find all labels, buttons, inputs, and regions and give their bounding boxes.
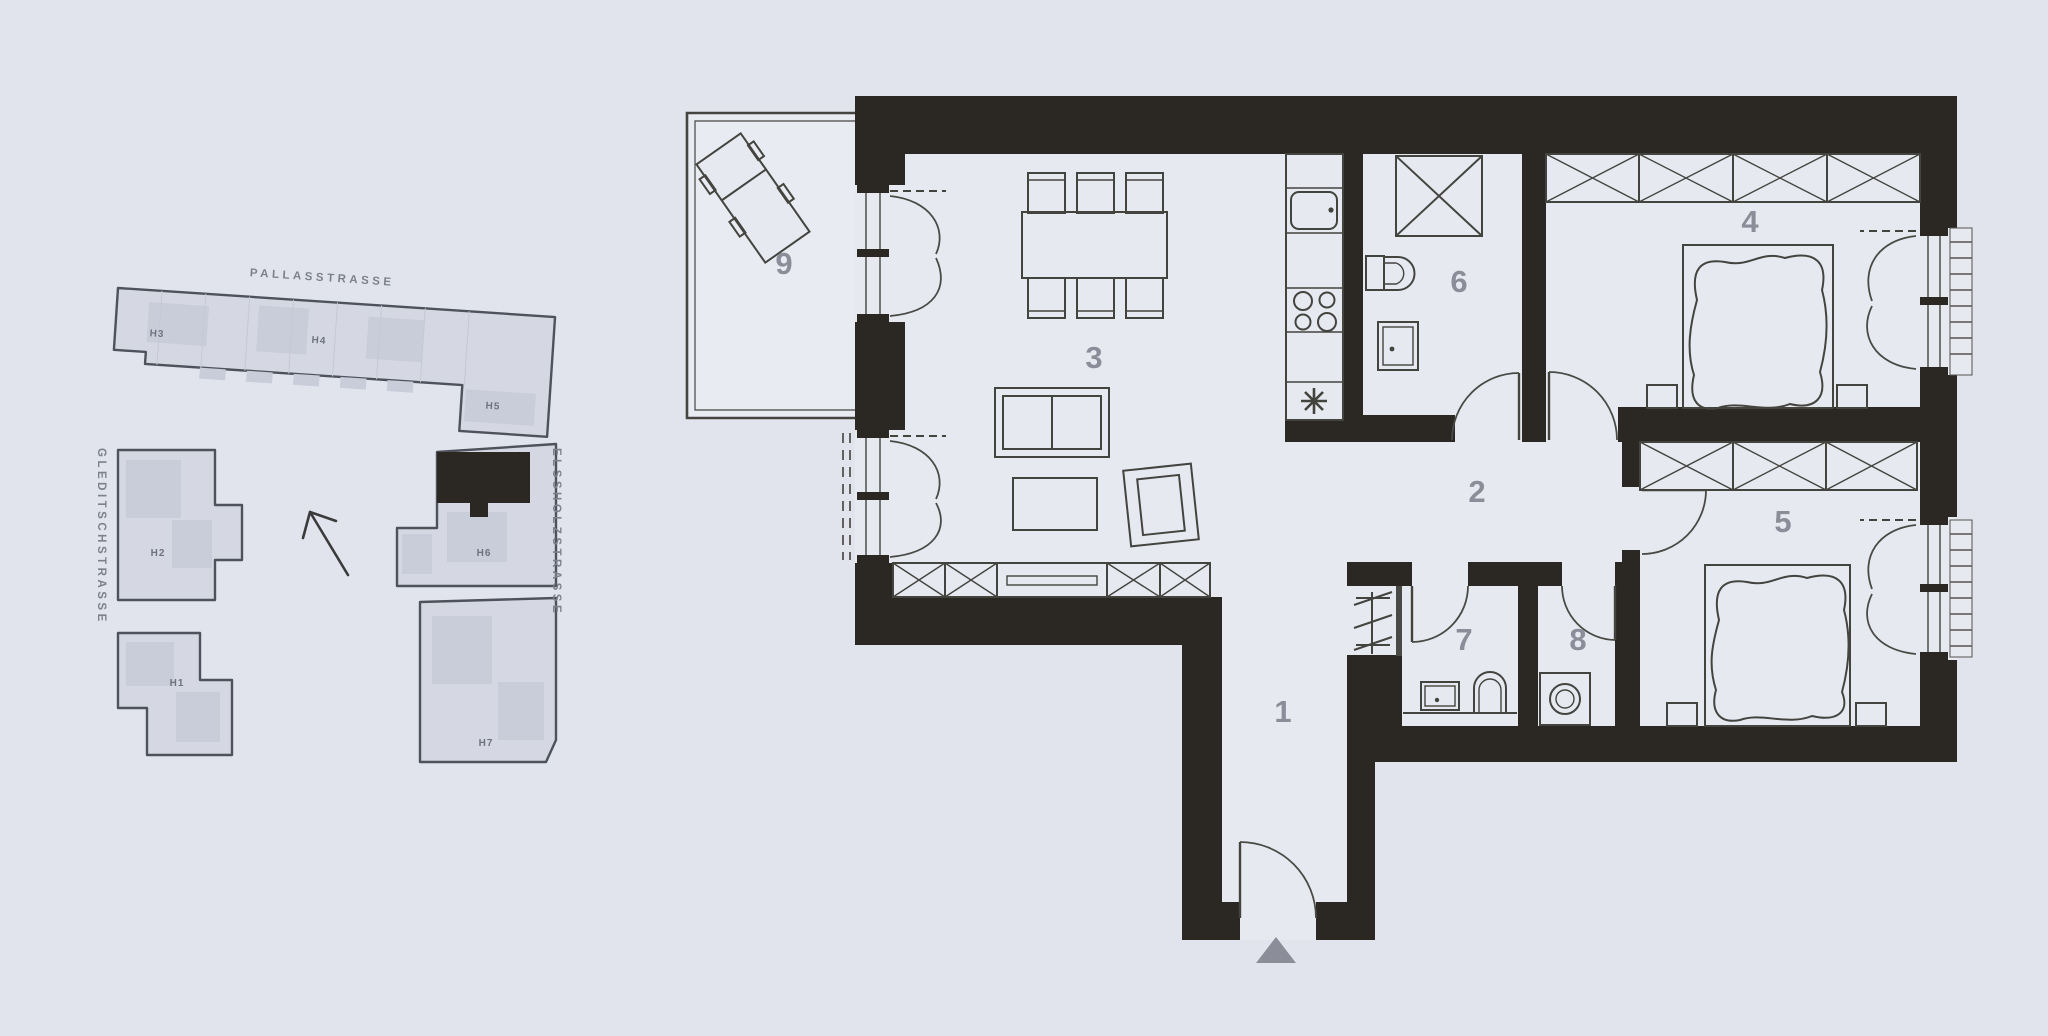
wall-utility-right [1615,562,1640,726]
wardrobe-bedroom5 [1640,442,1917,490]
balcony-mark [246,371,273,384]
wall-corridor-right [1347,726,1375,902]
room-label-9: 9 [775,246,792,281]
street-label-gleditschstrasse: GLEDITSCHSTRASSE [95,448,107,625]
wall-wc-utility [1518,562,1538,726]
wall-hall-bottom [1347,562,1412,586]
wall-kitchen-bath [1343,154,1363,415]
sideboard [893,563,1210,597]
street-label-pallasstrasse: PALLASSTRASSE [249,267,394,289]
wall-entry-left [1182,902,1240,940]
site-top-bar: H3 H4 H5 [110,288,555,437]
wall-right [1920,375,1957,517]
building-label-h7: H7 [479,738,494,749]
wall-bed4-bottom [1618,407,1920,442]
kitchen-counter [1286,154,1343,420]
balcony-mark [199,368,226,381]
juliet-balcony [1950,228,1972,375]
bed-bedroom4 [1683,245,1833,409]
entrance-arrow-icon [1256,937,1296,963]
balcony-mark [387,380,414,393]
wall-living-bottom [855,597,1222,645]
apartment-plan: 1 2 3 4 5 6 7 8 9 [687,96,1972,963]
wall-left [855,322,905,430]
site-plan: H3 H4 H5 H2 H1 H6 H7 PALLASSTRASS [95,267,562,762]
highlighted-unit [437,452,530,503]
wall-left [855,96,905,185]
building-label-h2: H2 [151,548,166,559]
wall-entry-right [1316,902,1375,940]
armchair [1123,464,1199,547]
highlighted-unit-stub [470,503,488,517]
sofa [995,388,1109,457]
shower [1396,156,1482,236]
building-label-h6: H6 [477,548,492,559]
wall-hall-bottom [1468,562,1562,586]
building-label-h4: H4 [311,335,326,347]
balcony-mark [340,377,367,390]
wall-niche-partition [1396,586,1402,656]
wall-bath-bottom [1363,415,1455,442]
building-label-h5: H5 [485,401,500,413]
building-texture [176,692,220,742]
north-arrow-icon [303,512,348,575]
building-texture [432,616,492,684]
street-label-elssholzstrasse: ELSSHOLZSTRASSE [550,448,562,616]
wall-corridor-right [1347,655,1402,726]
building-label-h3: H3 [149,328,164,340]
wall-bottom-right [1375,726,1957,762]
room-label-8: 8 [1569,622,1586,657]
balcony-mark [293,374,320,387]
balcony-9 [687,113,855,418]
bed-bedroom5 [1705,565,1850,726]
railing [843,433,850,560]
wardrobe-bedroom4 [1546,154,1920,202]
room-label-2: 2 [1468,474,1485,509]
room-label-4: 4 [1741,204,1759,239]
wall-top [855,96,1955,154]
wall-bath-bed4 [1522,154,1546,442]
room-label-5: 5 [1774,504,1791,539]
room-label-3: 3 [1085,340,1102,375]
building-texture [256,305,309,354]
room-label-6: 6 [1450,264,1467,299]
floor-plan-drawing: H3 H4 H5 H2 H1 H6 H7 PALLASSTRASS [0,0,2048,1036]
juliet-balcony [1950,520,1972,657]
building-texture [172,520,212,568]
building-texture [366,317,425,363]
building-texture [126,460,181,518]
building-texture [498,682,544,740]
building-label-h1: H1 [170,678,185,689]
room-label-1: 1 [1274,694,1291,729]
wall-right [1920,96,1957,228]
building-texture [402,534,432,574]
wall-corridor-left [1182,645,1222,940]
floor-plan-page: H3 H4 H5 H2 H1 H6 H7 PALLASSTRASS [0,0,2048,1036]
building-texture [126,642,174,686]
wall-bed5-left [1622,550,1640,564]
room-label-7: 7 [1455,622,1472,657]
wall-bed5-left [1622,442,1640,487]
